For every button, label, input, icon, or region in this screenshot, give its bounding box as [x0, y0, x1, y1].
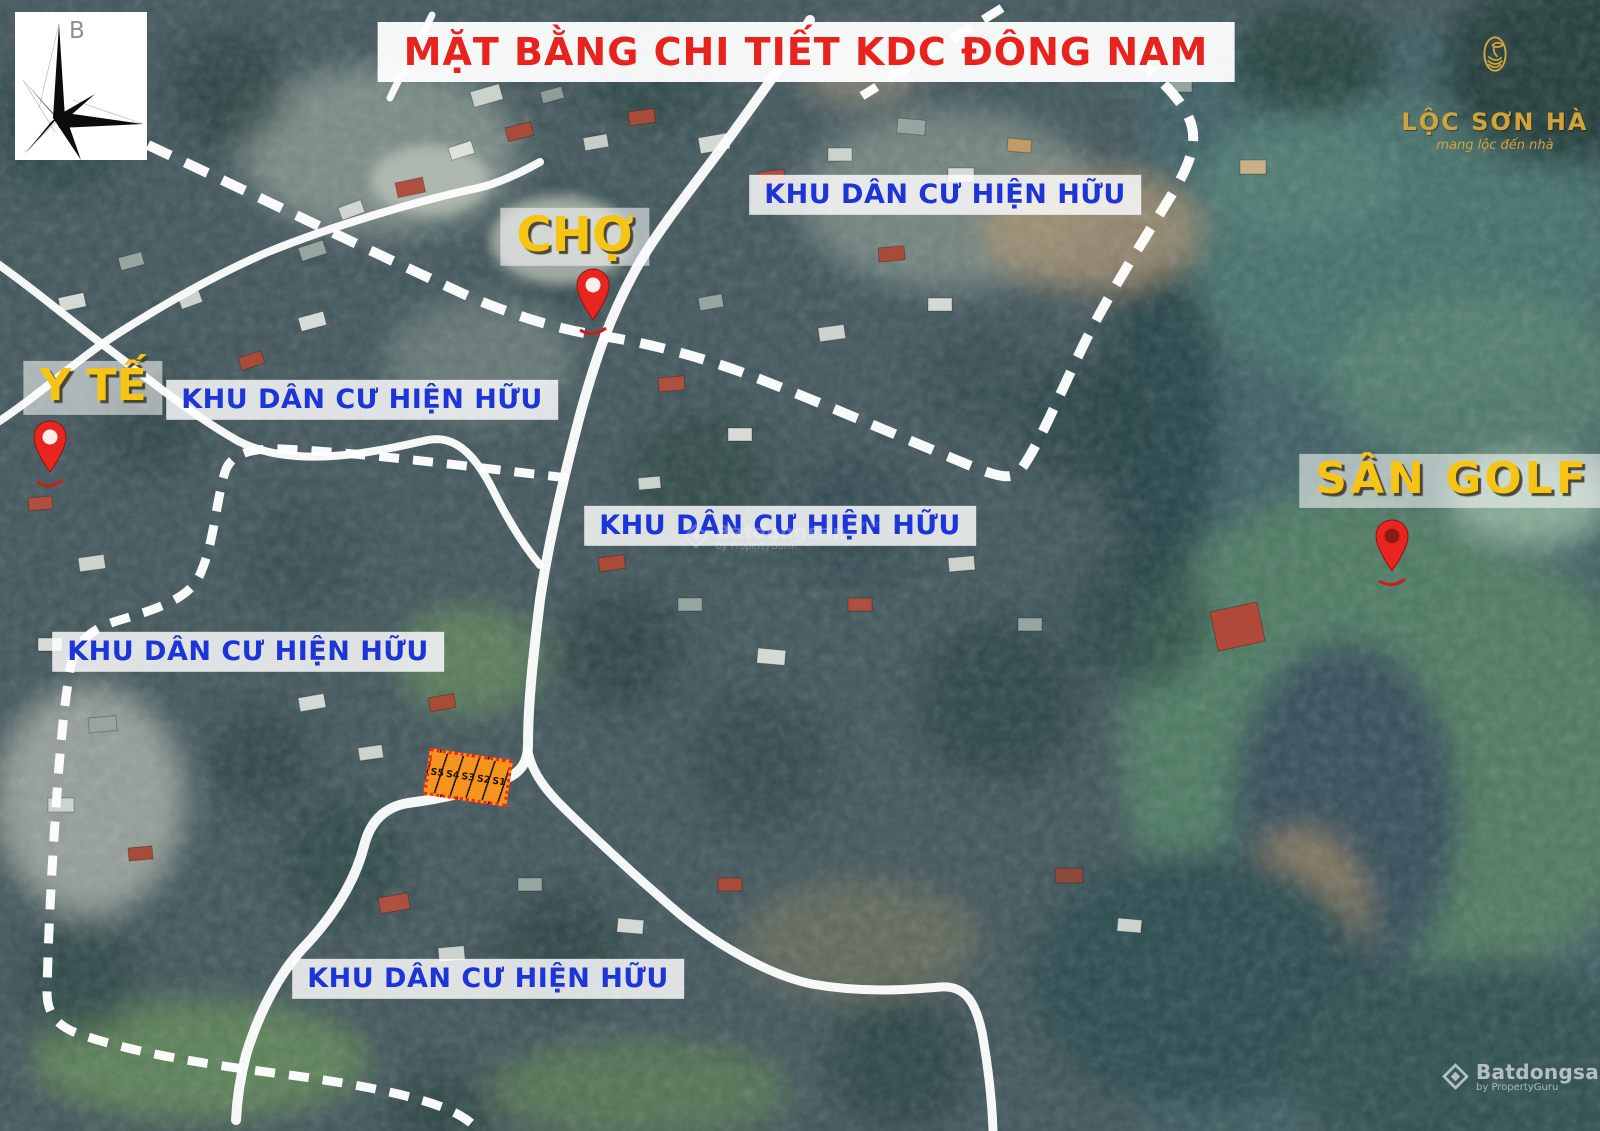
medical-pin-icon	[28, 418, 72, 492]
golf-pin-icon	[1370, 517, 1414, 591]
page-title: MẶT BẰNG CHI TIẾT KDC ĐÔNG NAM	[378, 22, 1235, 82]
label-residential-west: KHU DÂN CƯ HIỆN HỮU	[166, 380, 558, 420]
compass-rose: B	[15, 12, 147, 160]
label-residential-south: KHU DÂN CƯ HIỆN HỮU	[292, 959, 684, 999]
brand-name: LỘC SƠN HÀ	[1388, 108, 1600, 136]
label-medical: Y TẾ	[23, 361, 162, 415]
lot-s2: S2	[476, 773, 491, 786]
watermark-logo-icon	[683, 523, 709, 549]
satellite-map-background	[0, 0, 1600, 1131]
lot-s4: S4	[445, 769, 460, 782]
label-golf-course: SÂN GOLF	[1299, 454, 1600, 508]
brand-tagline: mang lộc đến nhà	[1388, 138, 1600, 153]
lot-s5: S5	[430, 766, 445, 779]
market-pin-icon	[571, 266, 615, 340]
watermark-domain: com.vn	[849, 520, 880, 530]
watermark-byline: by PropertyGuru	[1476, 1082, 1600, 1093]
label-market: CHỢ	[500, 208, 649, 266]
lot-s3: S3	[461, 771, 476, 784]
label-residential-north: KHU DÂN CƯ HIỆN HỮU	[749, 175, 1141, 215]
brand-swan-logo-icon	[1457, 6, 1533, 102]
compass-north-label: B	[69, 18, 85, 44]
watermark-name: Batdongsan	[1476, 1060, 1600, 1084]
watermark-center: Batdongsancom.vn by PropertyGuru	[683, 520, 880, 551]
lot-s1: S1	[491, 776, 506, 789]
watermark-byline: by PropertyGuru	[716, 541, 881, 551]
watermark-logo-icon	[1442, 1063, 1469, 1090]
brand-block: LỘC SƠN HÀ mang lộc đến nhà	[1388, 6, 1600, 153]
watermark-name: Batdongsan	[716, 520, 847, 543]
map-canvas: S5 S4 S3 S2 S1 MẶT BẰNG CHI TIẾT KDC ĐÔN…	[0, 0, 1600, 1131]
watermark-bottom-right: Batdongsancom.vn by PropertyGuru	[1442, 1060, 1600, 1093]
label-residential-southwest: KHU DÂN CƯ HIỆN HỮU	[52, 632, 444, 672]
